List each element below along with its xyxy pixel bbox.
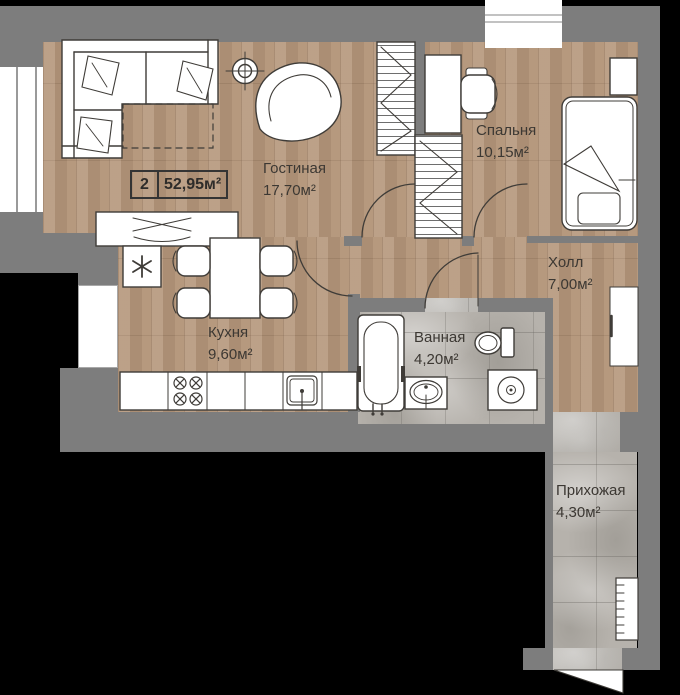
room-label-bedroom: Спальня 10,15м² bbox=[476, 120, 536, 164]
room-area: 10,15м² bbox=[476, 142, 536, 164]
room-label-kitchen: Кухня 9,60м² bbox=[208, 322, 253, 366]
floor-entry-neck bbox=[553, 412, 620, 452]
wall-living-bedroom-divider bbox=[415, 42, 425, 135]
wall-bottom-bathroom bbox=[358, 424, 553, 452]
window-frame-line bbox=[16, 67, 18, 212]
room-area: 7,00м² bbox=[548, 274, 593, 296]
floor-entry-doorway bbox=[553, 648, 622, 670]
room-name: Холл bbox=[548, 252, 593, 274]
wall-bathroom-entry-left bbox=[545, 298, 553, 648]
badge-total-area: 52,95м² bbox=[159, 172, 226, 197]
room-name: Спальня bbox=[476, 120, 536, 142]
wall-step-living-kitchen bbox=[43, 233, 118, 273]
entry-door-swing bbox=[554, 670, 623, 693]
room-name: Гостиная bbox=[263, 158, 326, 180]
shaft-line bbox=[485, 14, 562, 16]
window-kitchen-icon bbox=[78, 285, 118, 368]
apartment-badge: 2 52,95м² bbox=[130, 170, 228, 199]
room-label-hall: Холл 7,00м² bbox=[548, 252, 593, 296]
floor-living-bedroom bbox=[43, 42, 648, 237]
apartment-floor-plan: Гостиная 17,70м² Спальня 10,15м² Холл 7,… bbox=[0, 0, 680, 695]
window-frame-line bbox=[35, 67, 37, 212]
wall-bottom-kitchen bbox=[60, 412, 358, 452]
room-label-entry: Прихожая 4,30м² bbox=[556, 480, 626, 524]
room-label-bathroom: Ванная 4,20м² bbox=[414, 327, 465, 371]
wall-bathroom-top-right bbox=[478, 298, 553, 312]
wall-below-kitchen-window bbox=[60, 368, 118, 412]
wall-above-kitchen-window bbox=[78, 273, 118, 285]
room-area: 4,20м² bbox=[414, 349, 465, 371]
room-label-living: Гостиная 17,70м² bbox=[263, 158, 326, 202]
wall-left-lower bbox=[0, 212, 43, 273]
wall-bedroom-hall bbox=[527, 236, 648, 243]
wall-entry-neck-fill bbox=[620, 412, 638, 452]
wall-stub-corridor bbox=[344, 236, 362, 246]
shaft-block bbox=[485, 0, 562, 48]
shaft-line bbox=[485, 21, 562, 23]
wall-left-upper bbox=[0, 42, 43, 68]
wall-entry-bottom-right bbox=[622, 648, 660, 670]
room-area: 17,70м² bbox=[263, 180, 326, 202]
badge-room-count: 2 bbox=[132, 172, 159, 197]
wall-bathroom-top-left bbox=[348, 298, 425, 312]
room-name: Прихожая bbox=[556, 480, 626, 502]
wall-stub-bedroom-door bbox=[462, 236, 474, 246]
wall-right bbox=[638, 6, 660, 648]
room-name: Кухня bbox=[208, 322, 253, 344]
room-name: Ванная bbox=[414, 327, 465, 349]
room-area: 4,30м² bbox=[556, 502, 626, 524]
room-area: 9,60м² bbox=[208, 344, 253, 366]
floor-bathroom-threshold bbox=[425, 298, 478, 312]
wall-entry-bottom-left bbox=[523, 648, 553, 670]
